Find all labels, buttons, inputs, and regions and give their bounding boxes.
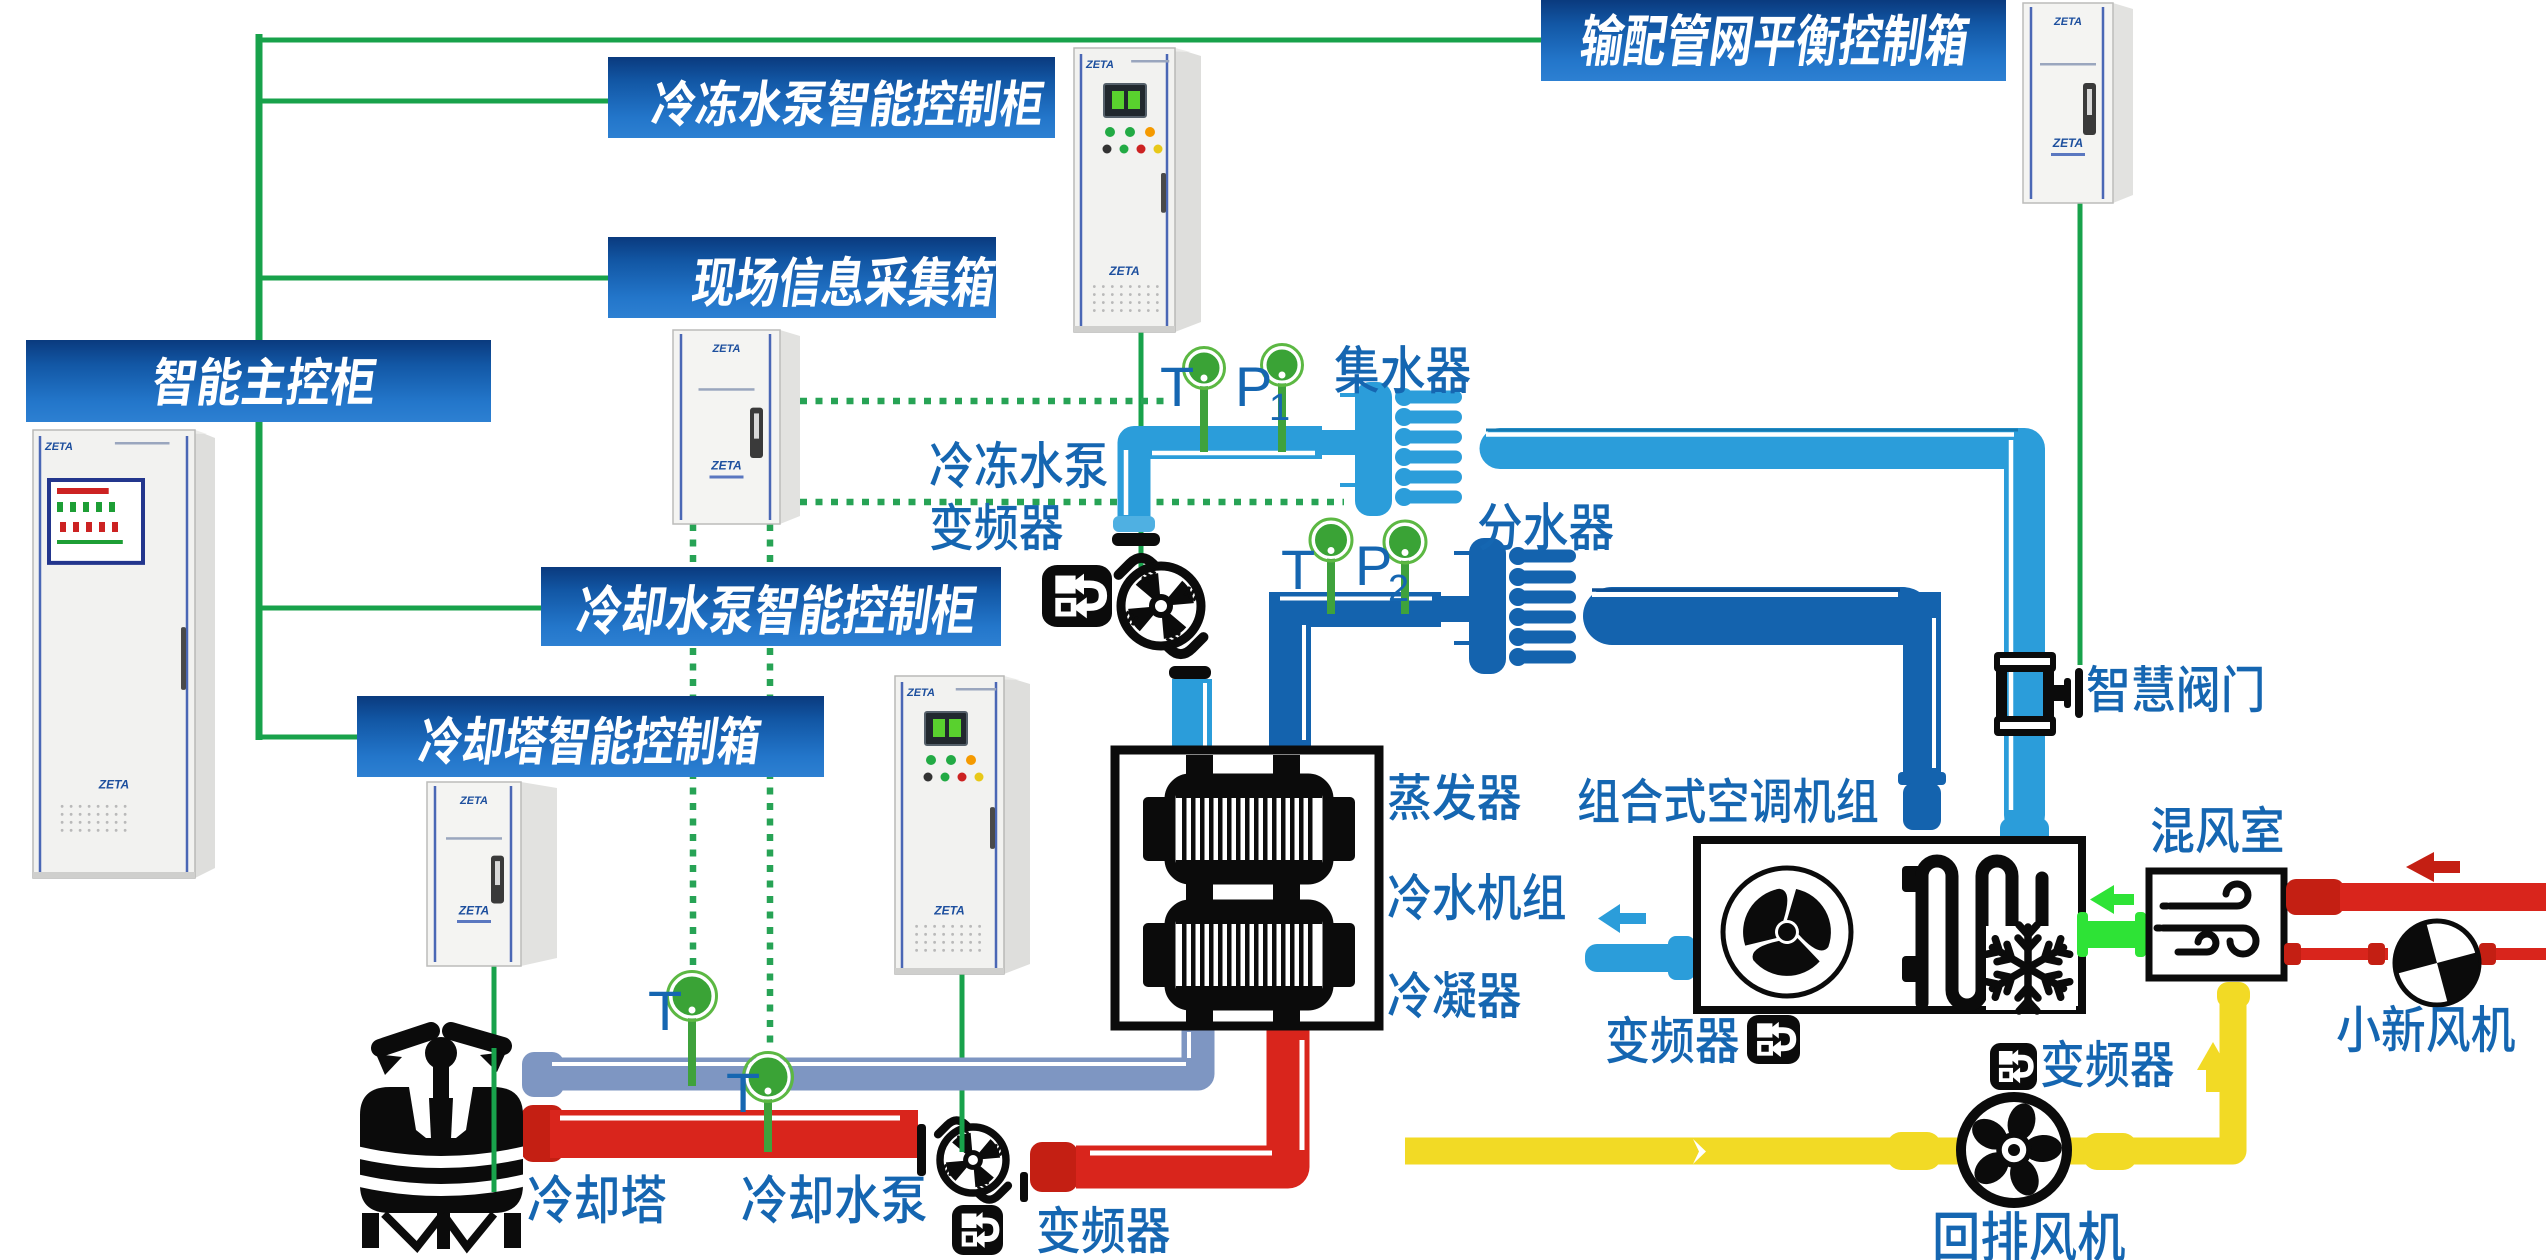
svg-text:T: T: [648, 979, 682, 1042]
svg-text:2: 2: [1388, 568, 1409, 610]
svg-text:T: T: [1281, 538, 1315, 601]
svg-text:P: P: [1355, 534, 1392, 597]
svg-text:ZETA: ZETA: [906, 687, 935, 699]
svg-text:P: P: [1235, 355, 1272, 418]
svg-text:1: 1: [1269, 387, 1290, 429]
svg-text:ZETA: ZETA: [712, 343, 741, 355]
svg-text:ZETA: ZETA: [933, 903, 964, 917]
svg-text:ZETA: ZETA: [459, 795, 488, 807]
svg-text:ZETA: ZETA: [1108, 264, 1139, 278]
svg-text:ZETA: ZETA: [1085, 59, 1114, 71]
svg-text:ZETA: ZETA: [2052, 136, 2083, 150]
svg-text:ZETA: ZETA: [44, 441, 73, 453]
svg-text:T: T: [726, 1061, 760, 1124]
svg-text:T: T: [1160, 355, 1194, 418]
svg-text:ZETA: ZETA: [2053, 16, 2082, 28]
svg-text:ZETA: ZETA: [458, 903, 489, 917]
svg-text:ZETA: ZETA: [710, 459, 741, 473]
svg-text:ZETA: ZETA: [98, 777, 129, 791]
